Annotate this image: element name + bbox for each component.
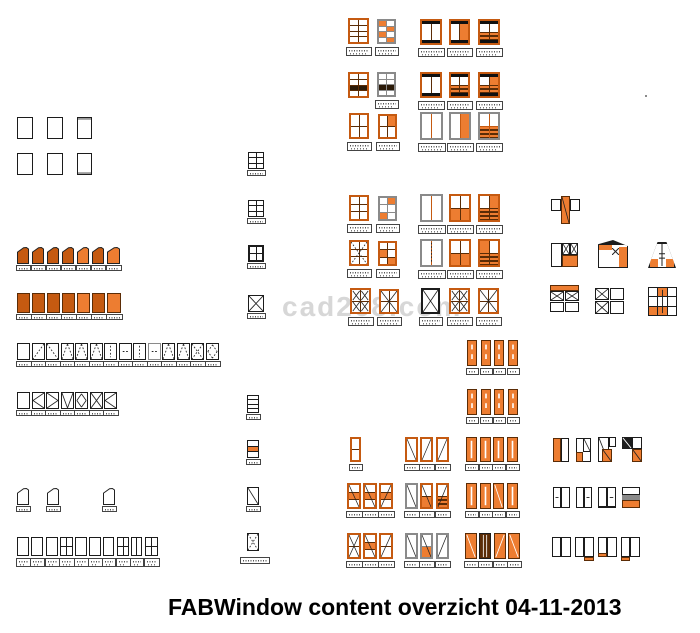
window-symbol[interactable] — [75, 537, 87, 556]
window-pane — [350, 80, 358, 85]
window-composite-symbol[interactable] — [622, 487, 640, 508]
symbol-label — [116, 558, 131, 567]
composite-part — [610, 288, 624, 300]
window-symbol[interactable] — [377, 19, 396, 44]
window-pane — [388, 258, 395, 264]
window-symbol[interactable] — [478, 194, 500, 222]
window-symbol[interactable] — [478, 112, 500, 140]
window-pane — [365, 550, 375, 557]
window-symbol[interactable] — [508, 340, 518, 366]
window-pane — [351, 205, 359, 212]
window-symbol[interactable] — [17, 537, 29, 556]
window-symbol[interactable] — [90, 392, 103, 409]
window-pane — [438, 497, 447, 508]
symbol-label — [16, 410, 32, 416]
window-symbol[interactable] — [493, 483, 504, 509]
window-pane — [359, 20, 367, 25]
window-symbol[interactable] — [77, 247, 89, 264]
symbol-label — [247, 263, 266, 269]
window-pane — [146, 547, 151, 555]
window-symbol[interactable] — [467, 340, 477, 366]
window-symbol[interactable] — [378, 241, 397, 266]
window-symbol[interactable] — [47, 153, 63, 175]
window-symbol[interactable] — [248, 152, 264, 169]
window-symbol[interactable] — [481, 340, 491, 366]
window-symbol[interactable] — [449, 19, 470, 45]
window-symbol[interactable] — [648, 287, 677, 316]
composite-part — [584, 487, 592, 508]
window-symbol[interactable] — [117, 537, 129, 556]
window-symbol[interactable] — [379, 483, 393, 509]
window-symbol[interactable] — [349, 240, 369, 266]
window-pane — [451, 196, 460, 208]
symbol-label — [377, 317, 402, 326]
window-pane — [451, 77, 459, 85]
window-pane — [480, 209, 489, 221]
window-symbol[interactable] — [46, 343, 59, 360]
composite-part — [553, 438, 561, 462]
window-symbol[interactable] — [347, 533, 361, 559]
window-symbol[interactable] — [363, 533, 377, 559]
window-symbol[interactable] — [119, 343, 132, 360]
window-pane — [365, 485, 375, 492]
window-symbol[interactable] — [420, 72, 442, 98]
window-symbol[interactable] — [449, 72, 470, 98]
window-symbol[interactable] — [348, 72, 369, 98]
window-symbol[interactable] — [104, 392, 117, 409]
symbol-label — [480, 417, 493, 424]
window-symbol[interactable] — [379, 289, 399, 314]
window-symbol[interactable] — [466, 483, 477, 509]
symbol-label — [205, 361, 221, 367]
symbol-label — [30, 558, 45, 567]
window-symbol[interactable] — [131, 537, 142, 556]
window-pane — [388, 205, 395, 211]
window-symbol[interactable] — [247, 487, 259, 505]
window-symbol[interactable] — [466, 437, 477, 462]
window-symbol[interactable] — [449, 112, 471, 140]
window-symbol[interactable] — [436, 533, 449, 559]
window-symbol[interactable] — [206, 343, 219, 360]
symbol-label — [74, 410, 90, 416]
window-composite-symbol[interactable] — [551, 196, 580, 224]
symbol-label — [247, 170, 266, 176]
window-pane — [359, 91, 367, 96]
window-pane — [490, 86, 499, 94]
window-symbol[interactable] — [478, 72, 500, 98]
window-symbol[interactable] — [247, 395, 259, 413]
composite-part — [552, 537, 561, 557]
window-symbol[interactable] — [420, 533, 433, 559]
window-pane — [350, 26, 358, 31]
symbol-label — [347, 224, 372, 233]
window-pane — [422, 497, 431, 508]
window-pane — [490, 24, 499, 32]
symbol-label — [106, 265, 122, 271]
window-symbol[interactable] — [377, 72, 396, 97]
window-composite-symbol[interactable] — [648, 242, 676, 268]
window-symbol[interactable] — [47, 117, 63, 139]
symbol-label — [376, 269, 400, 278]
window-pane — [451, 241, 460, 253]
window-symbol[interactable] — [47, 488, 59, 505]
window-symbol[interactable] — [494, 340, 504, 366]
window-symbol[interactable] — [508, 389, 518, 415]
window-symbol[interactable] — [61, 343, 74, 360]
window-pane — [381, 302, 389, 312]
window-symbol[interactable] — [350, 288, 371, 314]
window-pane — [249, 206, 256, 210]
window-symbol[interactable] — [449, 194, 471, 222]
window-composite-symbol[interactable] — [575, 537, 594, 561]
window-pane — [365, 493, 375, 500]
window-symbol[interactable] — [363, 483, 377, 509]
symbol-label — [161, 361, 177, 367]
window-pane — [249, 153, 256, 157]
window-pane — [432, 77, 441, 93]
window-pane — [480, 33, 489, 41]
window-pane — [248, 452, 258, 457]
symbol-label — [247, 218, 266, 224]
window-composite-symbol[interactable] — [576, 487, 592, 508]
symbol-label — [493, 417, 506, 424]
window-symbol[interactable] — [347, 483, 361, 509]
window-symbol[interactable] — [420, 483, 433, 509]
symbol-label — [247, 313, 266, 319]
window-symbol[interactable] — [77, 293, 90, 313]
composite-part — [562, 255, 578, 267]
window-symbol[interactable] — [17, 343, 30, 360]
composite-part — [607, 537, 617, 557]
window-symbol[interactable] — [379, 533, 393, 559]
window-symbol[interactable] — [107, 247, 120, 264]
window-pane — [379, 38, 386, 43]
composite-part — [622, 437, 632, 449]
symbol-label — [478, 561, 493, 568]
window-pane — [432, 24, 441, 40]
window-pane — [352, 302, 360, 313]
window-pane — [380, 250, 387, 256]
window-symbol[interactable] — [494, 389, 504, 415]
window-symbol[interactable] — [467, 389, 477, 415]
symbol-label — [479, 464, 493, 471]
window-composite-symbol[interactable] — [553, 438, 569, 462]
window-symbol[interactable] — [17, 392, 30, 409]
window-symbol[interactable] — [405, 483, 418, 509]
window-pane — [352, 290, 360, 301]
window-symbol[interactable] — [92, 293, 105, 313]
window-pane — [451, 209, 460, 221]
window-pane — [380, 213, 387, 219]
symbol-label — [447, 101, 473, 110]
window-pane — [349, 500, 359, 507]
symbol-label — [88, 558, 103, 567]
composite-part — [595, 288, 609, 300]
window-symbol[interactable] — [32, 293, 45, 313]
window-symbol[interactable] — [350, 437, 361, 462]
symbol-label — [348, 317, 374, 326]
window-pane — [379, 80, 386, 85]
window-pane — [380, 205, 387, 211]
window-symbol[interactable] — [507, 437, 518, 462]
window-composite-symbol[interactable] — [598, 240, 628, 268]
window-symbol[interactable] — [348, 18, 369, 44]
window-symbol[interactable] — [162, 343, 175, 360]
window-symbol[interactable] — [508, 533, 520, 559]
window-pane — [422, 439, 431, 460]
window-pane — [361, 290, 369, 301]
window-symbol[interactable] — [480, 483, 491, 509]
window-pane — [124, 547, 129, 555]
window-composite-symbol[interactable] — [621, 537, 640, 561]
window-pane — [349, 493, 359, 500]
window-symbol[interactable] — [247, 533, 259, 551]
window-pane — [461, 114, 470, 138]
window-symbol[interactable] — [177, 343, 190, 360]
window-symbol[interactable] — [75, 392, 88, 409]
window-symbol[interactable] — [17, 153, 33, 175]
symbol-label — [246, 506, 261, 512]
symbol-label — [506, 464, 520, 471]
window-pane — [460, 302, 468, 313]
window-symbol[interactable] — [46, 392, 59, 409]
window-symbol[interactable] — [77, 153, 92, 175]
window-pane — [668, 307, 676, 315]
window-symbol[interactable] — [248, 295, 264, 312]
window-symbol[interactable] — [480, 437, 491, 462]
window-pane — [407, 439, 416, 460]
symbol-label — [466, 417, 479, 424]
window-symbol[interactable] — [148, 343, 161, 360]
window-symbol[interactable] — [133, 343, 146, 360]
window-pane — [359, 37, 367, 42]
window-symbol[interactable] — [32, 247, 44, 264]
window-symbol[interactable] — [62, 293, 75, 313]
symbol-label — [480, 368, 493, 375]
symbol-label — [375, 47, 399, 56]
symbol-label — [435, 464, 451, 471]
window-symbol[interactable] — [77, 117, 92, 139]
window-pane — [124, 538, 129, 546]
window-pane — [361, 302, 369, 313]
window-symbol[interactable] — [436, 483, 449, 509]
window-pane — [387, 32, 394, 37]
window-symbol[interactable] — [17, 247, 29, 264]
window-symbol[interactable] — [478, 239, 500, 267]
window-pane — [381, 535, 391, 546]
composite-part — [551, 243, 562, 267]
window-pane — [250, 247, 256, 253]
window-symbol[interactable] — [421, 288, 440, 314]
window-symbol[interactable] — [248, 245, 264, 262]
window-pane — [380, 258, 387, 264]
window-symbol[interactable] — [92, 247, 104, 264]
window-symbol[interactable] — [46, 537, 58, 556]
symbol-label — [362, 511, 379, 518]
window-symbol[interactable] — [420, 239, 443, 267]
window-symbol[interactable] — [494, 533, 506, 559]
window-symbol[interactable] — [507, 483, 518, 509]
window-pane — [668, 288, 676, 296]
window-symbol[interactable] — [449, 239, 471, 267]
symbol-label — [404, 561, 420, 568]
composite-part — [619, 247, 627, 267]
window-symbol[interactable] — [17, 117, 33, 139]
window-symbol[interactable] — [17, 488, 29, 505]
window-symbol[interactable] — [75, 343, 88, 360]
symbol-label — [447, 270, 474, 279]
window-pane — [360, 197, 368, 204]
symbol-label — [240, 557, 270, 564]
symbol-label — [404, 464, 420, 471]
window-symbol[interactable] — [479, 533, 491, 559]
symbol-label — [435, 511, 451, 518]
window-pane — [67, 547, 72, 555]
window-composite-symbol[interactable] — [595, 288, 624, 314]
window-pane — [422, 485, 431, 496]
window-symbol[interactable] — [420, 194, 443, 222]
symbol-label — [419, 317, 443, 326]
symbol-label — [347, 269, 372, 278]
window-symbol[interactable] — [104, 343, 117, 360]
window-pane — [352, 439, 359, 449]
window-pane — [407, 485, 416, 507]
window-pane — [132, 538, 136, 555]
window-pane — [480, 127, 489, 139]
window-symbol[interactable] — [32, 392, 45, 409]
window-pane — [461, 254, 470, 266]
window-symbol[interactable] — [47, 247, 59, 264]
symbol-label — [130, 558, 144, 567]
symbol-label — [476, 225, 503, 234]
symbol-label — [447, 225, 474, 234]
window-pane — [257, 254, 263, 260]
symbol-label — [419, 511, 435, 518]
window-composite-symbol[interactable] — [598, 487, 616, 508]
composite-part — [553, 487, 561, 508]
window-pane — [461, 241, 470, 253]
window-symbol[interactable] — [145, 537, 158, 556]
window-pane — [61, 547, 66, 555]
symbol-label — [91, 265, 106, 271]
symbol-label — [476, 317, 502, 326]
window-symbol[interactable] — [349, 113, 369, 139]
window-symbol[interactable] — [61, 392, 74, 409]
window-symbol[interactable] — [248, 200, 264, 217]
window-symbol[interactable] — [47, 293, 60, 313]
window-pane — [490, 114, 499, 126]
window-pane — [388, 127, 395, 137]
window-composite-symbol[interactable] — [576, 438, 591, 462]
window-symbol[interactable] — [107, 293, 121, 313]
window-pane — [432, 196, 441, 220]
window-composite-symbol[interactable] — [598, 537, 617, 557]
symbol-label — [16, 314, 32, 320]
window-pane — [490, 77, 499, 85]
window-pane — [248, 405, 258, 408]
symbol-label — [31, 265, 46, 271]
window-symbol[interactable] — [247, 440, 259, 458]
window-symbol[interactable] — [436, 437, 449, 462]
window-pane — [365, 543, 375, 550]
window-composite-symbol[interactable] — [598, 437, 616, 462]
symbol-label — [103, 361, 119, 367]
window-symbol[interactable] — [420, 437, 433, 462]
symbol-label — [103, 410, 119, 416]
window-composite-symbol[interactable] — [551, 243, 578, 267]
window-symbol[interactable] — [378, 196, 397, 221]
window-symbol[interactable] — [90, 343, 103, 360]
composite-part — [583, 438, 591, 452]
composite-part — [584, 557, 594, 561]
window-pane — [451, 86, 459, 94]
window-pane — [257, 247, 263, 253]
window-symbol[interactable] — [60, 537, 73, 556]
symbol-label — [91, 314, 107, 320]
window-symbol[interactable] — [191, 343, 204, 360]
window-symbol[interactable] — [32, 343, 45, 360]
window-composite-symbol[interactable] — [550, 285, 579, 312]
symbol-label — [418, 48, 445, 57]
window-pane — [359, 26, 367, 31]
window-symbol[interactable] — [465, 533, 477, 559]
window-pane — [388, 213, 395, 219]
window-pane — [350, 32, 358, 37]
window-pane — [480, 24, 489, 32]
window-symbol[interactable] — [62, 247, 74, 264]
window-pane — [422, 196, 431, 220]
composite-part — [561, 537, 571, 557]
window-symbol[interactable] — [478, 288, 499, 314]
window-pane — [350, 74, 358, 79]
window-symbol[interactable] — [103, 488, 115, 505]
window-symbol[interactable] — [420, 19, 442, 45]
window-pane — [360, 242, 368, 249]
window-symbol[interactable] — [89, 537, 101, 556]
window-symbol[interactable] — [349, 195, 369, 221]
window-pane — [460, 24, 468, 40]
window-pane — [422, 241, 431, 265]
window-symbol[interactable] — [31, 537, 43, 556]
window-composite-symbol[interactable] — [553, 487, 570, 508]
window-pane — [432, 114, 441, 138]
window-pane — [422, 547, 431, 558]
window-symbol[interactable] — [378, 114, 397, 139]
window-symbol[interactable] — [420, 112, 443, 140]
window-pane — [490, 241, 499, 253]
composite-part — [550, 302, 564, 312]
window-composite-symbol[interactable] — [622, 437, 642, 462]
symbol-label — [46, 265, 61, 271]
symbol-label — [476, 143, 503, 152]
window-symbol[interactable] — [481, 389, 491, 415]
window-symbol[interactable] — [405, 437, 418, 462]
symbol-label — [349, 464, 363, 471]
composite-part — [612, 248, 619, 255]
window-symbol[interactable] — [478, 19, 500, 45]
window-composite-symbol[interactable] — [552, 537, 571, 557]
window-symbol[interactable] — [17, 293, 30, 313]
window-pane — [422, 77, 431, 93]
window-symbol[interactable] — [493, 437, 504, 462]
symbol-label — [46, 314, 62, 320]
symbol-label — [106, 314, 123, 320]
window-symbol[interactable] — [405, 533, 418, 559]
window-symbol[interactable] — [103, 537, 114, 556]
window-symbol[interactable] — [449, 288, 470, 314]
symbol-label — [144, 558, 160, 567]
composite-part — [561, 487, 570, 508]
